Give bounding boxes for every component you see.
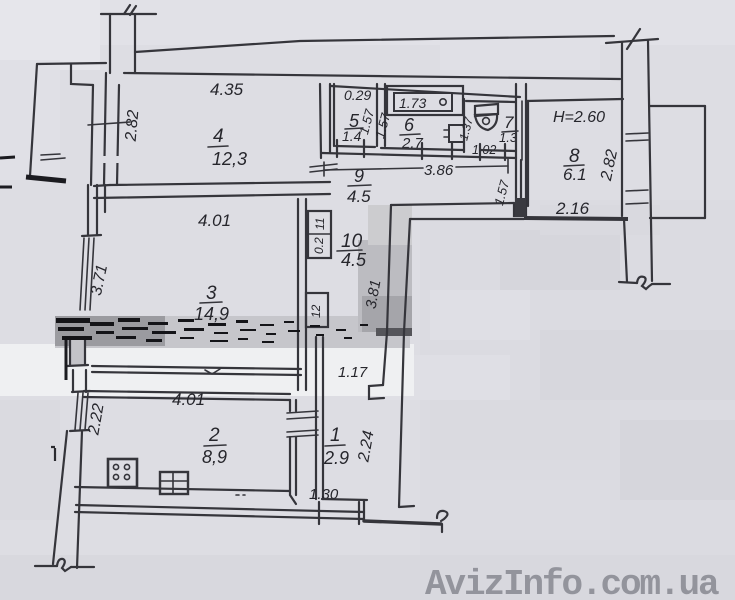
svg-text:AvizInfo.com.ua: AvizInfo.com.ua: [425, 564, 719, 600]
svg-text:0.2: 0.2: [312, 237, 326, 254]
svg-text:2.16: 2.16: [555, 199, 590, 218]
svg-text:H=2.60: H=2.60: [553, 109, 605, 126]
svg-text:1: 1: [330, 425, 341, 446]
svg-text:4.35: 4.35: [210, 80, 244, 99]
svg-text:12: 12: [309, 304, 323, 318]
svg-text:14,9: 14,9: [194, 304, 229, 324]
svg-text:3.86: 3.86: [424, 162, 454, 179]
svg-text:12,3: 12,3: [212, 149, 247, 169]
svg-text:8: 8: [569, 146, 580, 167]
svg-text:4.01: 4.01: [172, 390, 205, 409]
svg-text:4.5: 4.5: [341, 250, 367, 270]
svg-text:0.29: 0.29: [344, 87, 371, 103]
svg-text:2: 2: [208, 425, 220, 446]
svg-text:10: 10: [341, 231, 363, 252]
svg-text:6.1: 6.1: [563, 165, 587, 184]
svg-text:4: 4: [213, 126, 224, 147]
svg-text:2.82: 2.82: [123, 109, 143, 143]
svg-text:4.5: 4.5: [347, 187, 371, 206]
svg-text:2.9: 2.9: [323, 448, 349, 468]
svg-text:1.73: 1.73: [399, 95, 426, 111]
svg-text:1.17: 1.17: [338, 364, 368, 381]
svg-text:6: 6: [404, 115, 415, 135]
svg-text:1.30: 1.30: [309, 486, 339, 503]
svg-text:11: 11: [313, 218, 327, 230]
svg-text:8,9: 8,9: [202, 447, 227, 467]
svg-text:3: 3: [206, 283, 217, 304]
svg-text:4.01: 4.01: [198, 211, 231, 230]
